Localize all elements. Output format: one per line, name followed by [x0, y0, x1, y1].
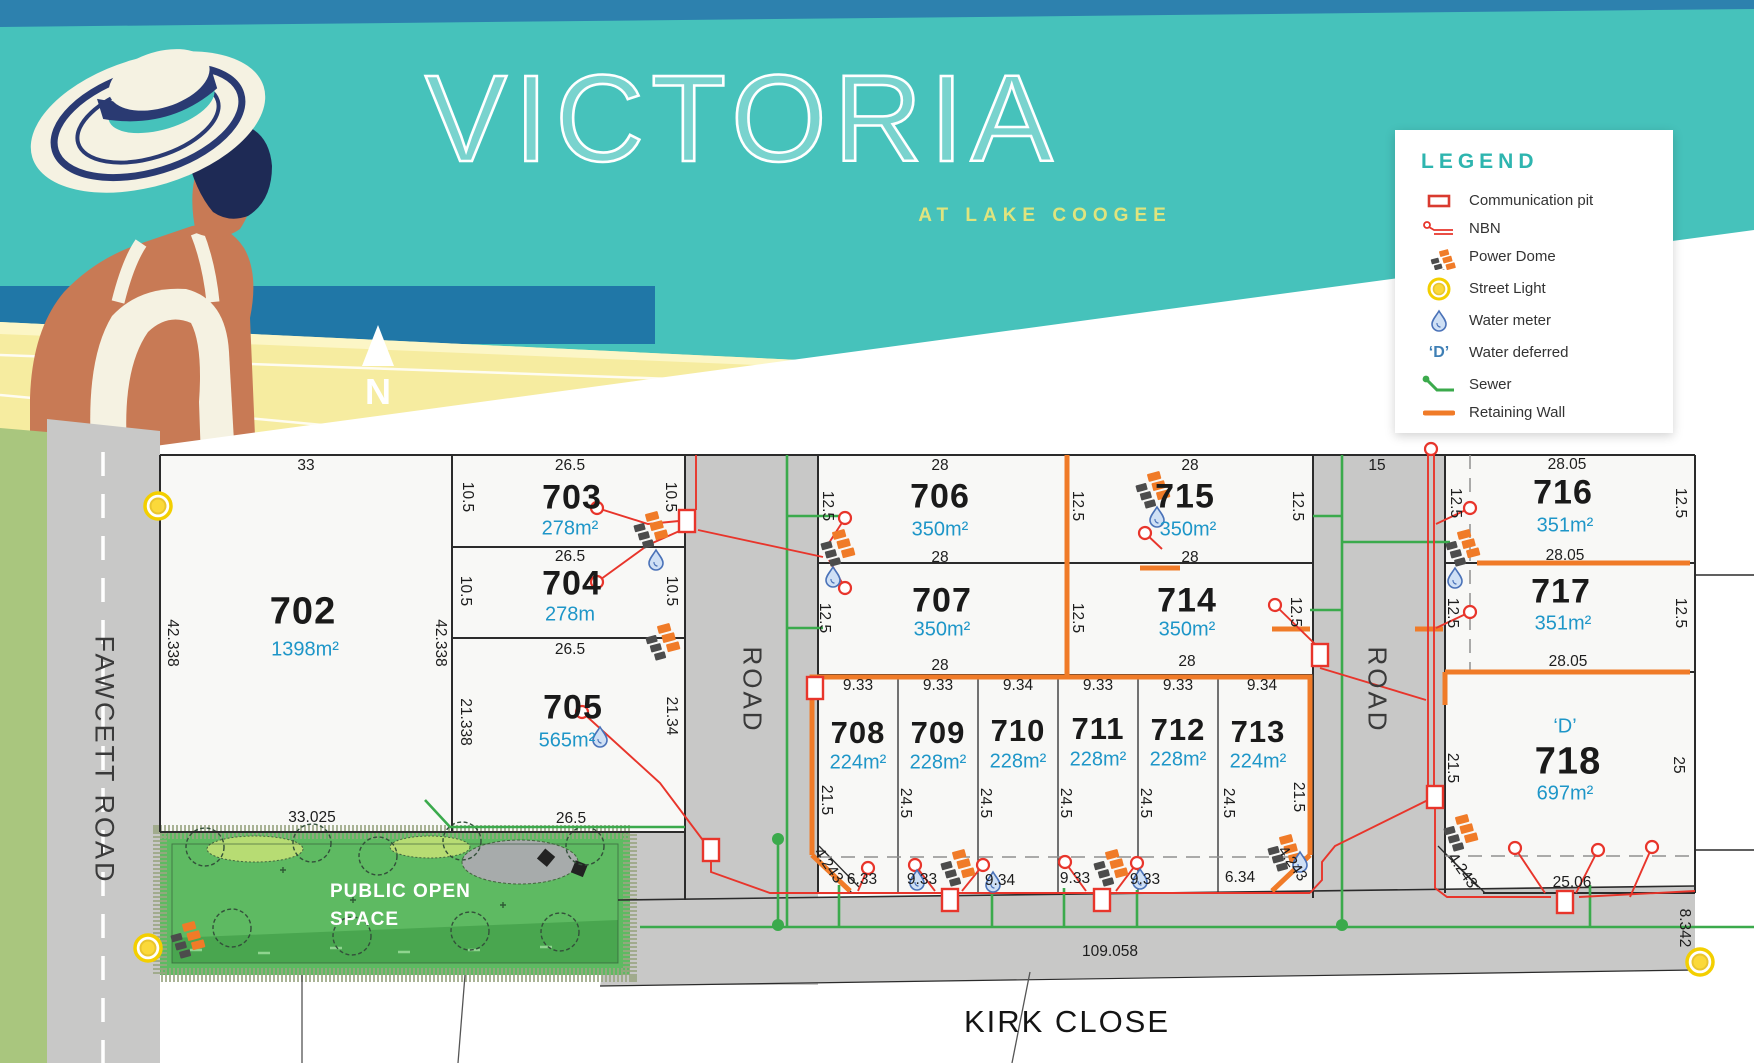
- legend-item-water-meter: Water meter: [1421, 310, 1673, 331]
- estate-subtitle: AT LAKE COOGEE: [845, 205, 1245, 227]
- verge-strip: [0, 428, 47, 1063]
- estate-title: VICTORIA: [425, 55, 1025, 184]
- street-light-icon: [1421, 276, 1457, 302]
- legend-item-street-light: Street Light: [1421, 278, 1673, 299]
- legend-item-water-deferred: ‘D’ Water deferred: [1421, 342, 1673, 363]
- playground-area: [462, 840, 578, 884]
- north-label: N: [365, 371, 391, 413]
- legend-title: LEGEND: [1421, 150, 1673, 174]
- power-dome-icon: [1421, 244, 1457, 270]
- road1-label: ROAD: [737, 646, 768, 733]
- water-deferred-icon: ‘D’: [1421, 344, 1457, 362]
- legend-panel: LEGEND Communication pit NBN Power Dome …: [1395, 130, 1673, 433]
- water-meter-icon: [1421, 309, 1457, 333]
- legend-item-sewer: Sewer: [1421, 374, 1673, 395]
- kirk-close-label: KIRK CLOSE: [964, 1004, 1170, 1040]
- legend-item-communication-pit: Communication pit: [1421, 190, 1673, 211]
- legend-item-power-dome: Power Dome: [1421, 246, 1673, 267]
- legend-item-nbn: NBN: [1421, 218, 1673, 239]
- road2-label: ROAD: [1362, 646, 1393, 733]
- kirk-close-surface: [600, 886, 1695, 986]
- fawcett-road-label: FAWCETT ROAD: [89, 635, 120, 884]
- legend-item-retaining-wall: Retaining Wall: [1421, 402, 1673, 423]
- nbn-icon: [1421, 221, 1457, 237]
- communication-pit-icon: [1421, 194, 1457, 208]
- public-open-space-label: PUBLIC OPEN SPACE: [330, 878, 471, 933]
- estate-plan-page: VICTORIA AT LAKE COOGEE N LEGEND Communi…: [0, 0, 1754, 1063]
- retaining-wall-icon: [1421, 409, 1457, 417]
- sewer-icon: [1421, 375, 1457, 395]
